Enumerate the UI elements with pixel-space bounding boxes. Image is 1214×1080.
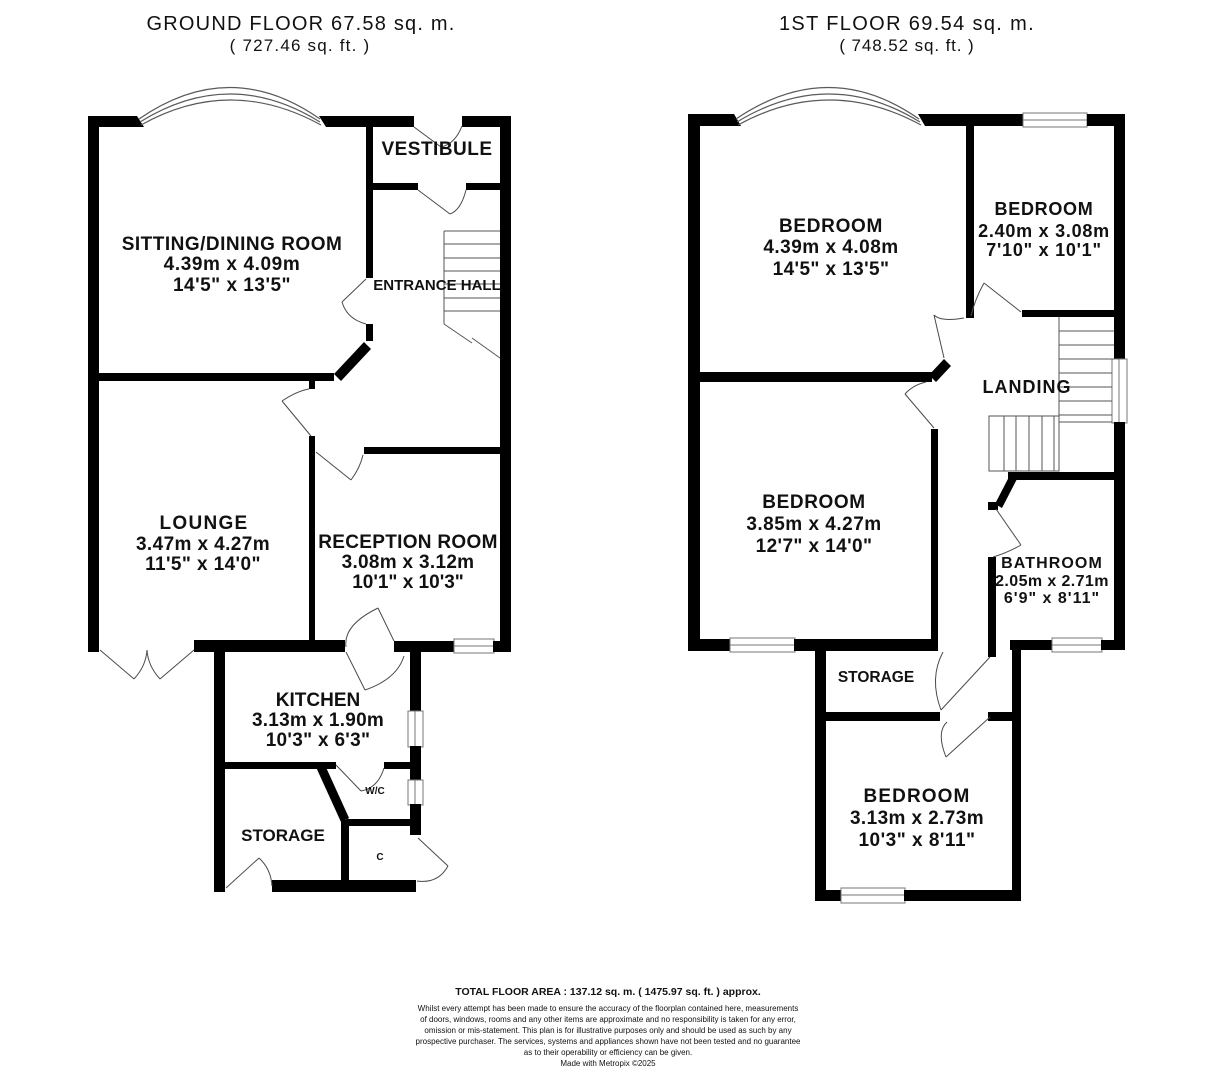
svg-text:4.39m x 4.09m: 4.39m x 4.09m [164, 254, 301, 275]
svg-text:14'5" x 13'5": 14'5" x 13'5" [773, 259, 890, 280]
svg-text:1ST FLOOR 69.54 sq. m.: 1ST FLOOR 69.54 sq. m. [779, 13, 1035, 35]
svg-text:6'9" x 8'11": 6'9" x 8'11" [1004, 590, 1100, 607]
svg-text:STORAGE: STORAGE [241, 826, 325, 845]
svg-text:GROUND FLOOR 67.58 sq. m.: GROUND FLOOR 67.58 sq. m. [147, 13, 456, 35]
svg-text:2.05m x 2.71m: 2.05m x 2.71m [995, 573, 1109, 590]
svg-text:LOUNGE: LOUNGE [159, 513, 248, 534]
svg-text:BEDROOM: BEDROOM [995, 199, 1094, 219]
svg-text:3.13m x 2.73m: 3.13m x 2.73m [850, 808, 984, 829]
svg-text:SITTING/DINING ROOM: SITTING/DINING ROOM [122, 234, 343, 255]
svg-text:3.47m x 4.27m: 3.47m x 4.27m [136, 534, 270, 555]
svg-text:14'5" x 13'5": 14'5" x 13'5" [173, 275, 291, 296]
svg-text:C: C [376, 852, 383, 863]
svg-text:3.85m x 4.27m: 3.85m x 4.27m [746, 514, 881, 535]
svg-text:RECEPTION ROOM: RECEPTION ROOM [318, 532, 497, 553]
svg-text:( 748.52 sq. ft. ): ( 748.52 sq. ft. ) [839, 36, 974, 55]
svg-text:STORAGE: STORAGE [838, 669, 914, 686]
svg-text:omission or mis-statement. Thi: omission or mis-statement. This plan is … [424, 1026, 791, 1035]
svg-text:BEDROOM: BEDROOM [864, 786, 971, 807]
svg-text:7'10" x 10'1": 7'10" x 10'1" [986, 240, 1101, 260]
svg-text:10'1" x 10'3": 10'1" x 10'3" [352, 572, 464, 593]
svg-text:10'3" x 8'11": 10'3" x 8'11" [858, 830, 975, 851]
svg-text:ENTRANCE HALL: ENTRANCE HALL [373, 277, 501, 294]
svg-text:of doors, windows, rooms and a: of doors, windows, rooms and any other i… [420, 1015, 796, 1024]
svg-text:12'7" x 14'0": 12'7" x 14'0" [756, 536, 873, 557]
svg-text:prospective purchaser. The ser: prospective purchaser. The services, sys… [416, 1037, 802, 1046]
svg-text:4.39m x 4.08m: 4.39m x 4.08m [763, 237, 898, 258]
svg-text:11'5" x 14'0": 11'5" x 14'0" [145, 554, 261, 575]
svg-text:BEDROOM: BEDROOM [762, 492, 865, 513]
svg-text:as to their operability or eff: as to their operability or efficiency ca… [524, 1048, 692, 1057]
svg-text:BEDROOM: BEDROOM [779, 216, 883, 237]
svg-text:( 727.46 sq. ft. ): ( 727.46 sq. ft. ) [230, 36, 371, 55]
svg-text:TOTAL FLOOR AREA : 137.12 sq.: TOTAL FLOOR AREA : 137.12 sq. m. ( 1475.… [455, 986, 761, 998]
svg-text:2.40m x 3.08m: 2.40m x 3.08m [978, 221, 1110, 241]
svg-text:BATHROOM: BATHROOM [1001, 555, 1103, 572]
svg-text:3.08m x 3.12m: 3.08m x 3.12m [342, 552, 475, 573]
svg-text:10'3" x 6'3": 10'3" x 6'3" [266, 730, 371, 751]
svg-text:Made with Metropix ©2025: Made with Metropix ©2025 [560, 1059, 656, 1068]
svg-text:KITCHEN: KITCHEN [276, 690, 360, 711]
svg-text:LANDING: LANDING [983, 377, 1072, 397]
svg-text:3.13m x 1.90m: 3.13m x 1.90m [252, 710, 384, 731]
svg-text:VESTIBULE: VESTIBULE [381, 139, 492, 160]
svg-text:W/C: W/C [365, 786, 384, 797]
svg-text:Whilst every attempt has been: Whilst every attempt has been made to en… [418, 1004, 799, 1013]
